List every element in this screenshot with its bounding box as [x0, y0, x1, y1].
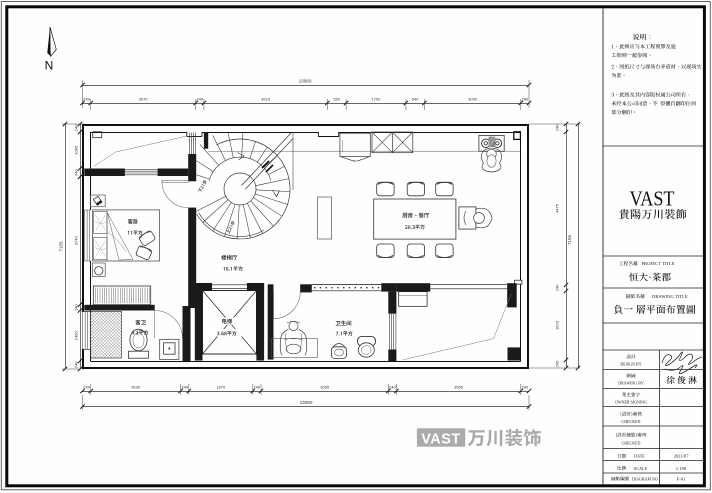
- svg-text:240: 240: [73, 124, 78, 131]
- svg-text:3740: 3740: [73, 236, 78, 246]
- svg-text:VAST: VAST: [630, 187, 675, 211]
- svg-text:3610: 3610: [261, 96, 271, 101]
- svg-text:1460: 1460: [73, 331, 78, 341]
- svg-text:2021/07: 2021/07: [673, 454, 689, 459]
- svg-text:7155: 7155: [58, 241, 63, 252]
- svg-text:CHECKED: CHECKED: [622, 419, 641, 424]
- svg-text:2630: 2630: [131, 385, 141, 390]
- svg-text:550: 550: [333, 96, 340, 101]
- svg-text:240: 240: [389, 385, 396, 390]
- svg-text:240: 240: [522, 385, 529, 390]
- svg-text:1:100: 1:100: [676, 466, 687, 471]
- svg-text:1750: 1750: [372, 96, 382, 101]
- svg-text:SCALE: SCALE: [634, 466, 648, 471]
- svg-text:240: 240: [73, 169, 78, 176]
- svg-text:DRAWING TITLE: DRAWING TITLE: [652, 294, 688, 299]
- svg-text:OWNER SIGNING: OWNER SIGNING: [615, 400, 647, 405]
- svg-text:240: 240: [73, 361, 78, 368]
- svg-text:13060: 13060: [299, 78, 312, 83]
- svg-text:240: 240: [555, 284, 560, 291]
- svg-text:240: 240: [83, 96, 90, 101]
- svg-text:CHECKED: CHECKED: [622, 441, 641, 446]
- svg-text:240: 240: [73, 303, 78, 310]
- svg-text:540: 540: [412, 96, 419, 101]
- svg-text:240: 240: [555, 360, 560, 367]
- svg-text:4475: 4475: [555, 203, 560, 213]
- svg-text:3565: 3565: [454, 385, 464, 390]
- svg-text:240: 240: [196, 96, 203, 101]
- svg-text:240: 240: [555, 124, 560, 131]
- svg-text:240: 240: [181, 385, 188, 390]
- svg-text:240: 240: [254, 385, 261, 390]
- svg-text:13060: 13060: [300, 400, 313, 405]
- svg-text:DATE: DATE: [634, 454, 645, 459]
- svg-text:VAST: VAST: [421, 431, 461, 447]
- svg-text:N: N: [45, 59, 54, 73]
- svg-text:7155: 7155: [567, 234, 572, 245]
- svg-text:3050: 3050: [468, 96, 478, 101]
- svg-text:F-01: F-01: [677, 476, 686, 481]
- svg-text:DIAGRAM NO.: DIAGRAM NO.: [632, 476, 659, 481]
- svg-text:DESIGN BY: DESIGN BY: [620, 362, 641, 367]
- svg-text:240: 240: [83, 385, 90, 390]
- svg-text:240: 240: [522, 96, 529, 101]
- svg-text:1870: 1870: [216, 385, 226, 390]
- svg-text:3070: 3070: [139, 96, 149, 101]
- svg-text:1065: 1065: [73, 145, 78, 155]
- svg-text:DRAWING BY: DRAWING BY: [618, 381, 644, 386]
- svg-text:1870: 1870: [555, 320, 560, 330]
- svg-text:PROJECT TITLE: PROJECT TITLE: [642, 261, 675, 266]
- svg-text:3065: 3065: [320, 385, 330, 390]
